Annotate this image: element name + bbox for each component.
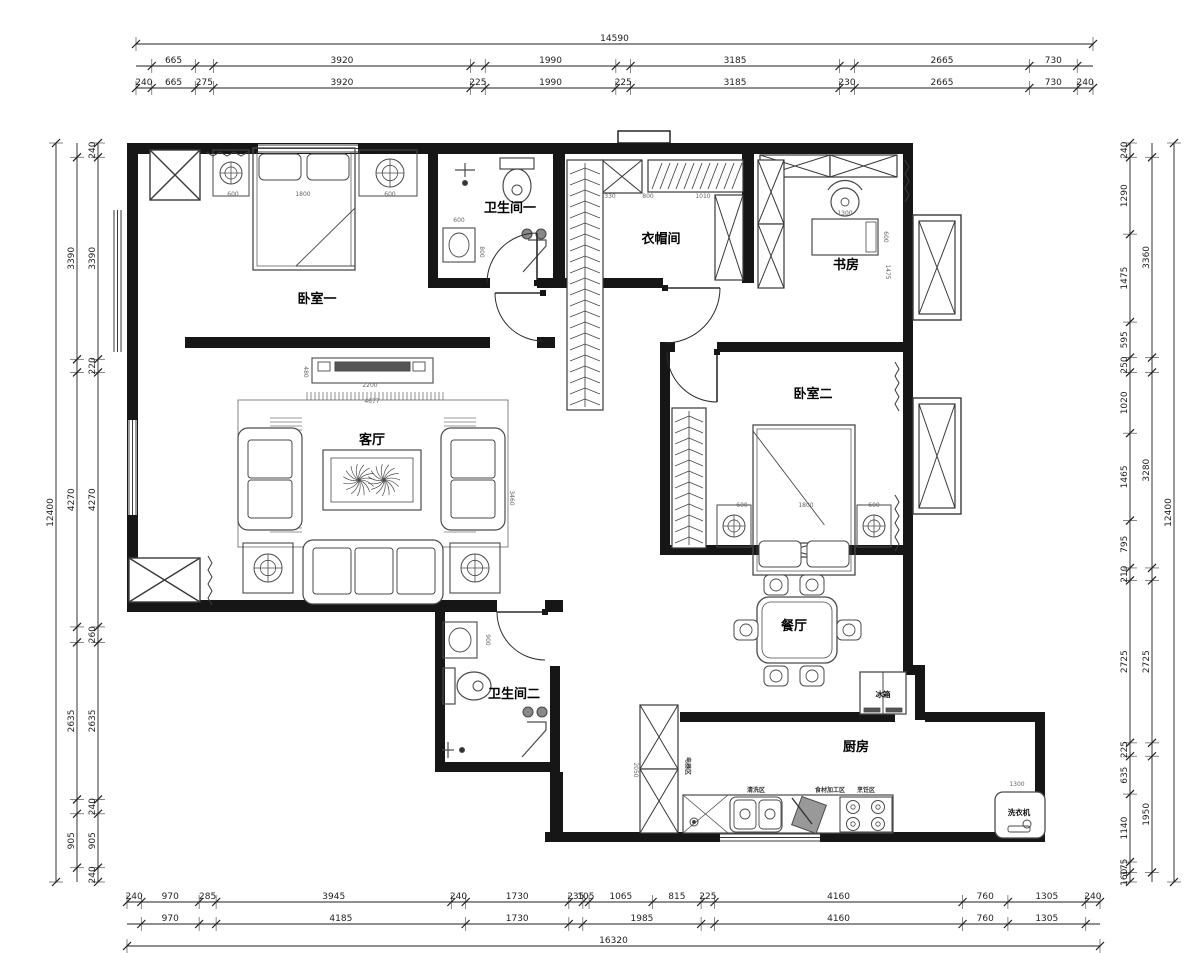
furniture-dim-label: 600 (227, 191, 239, 198)
wall-segment (185, 337, 490, 348)
shower-icon (522, 229, 546, 272)
wardrobe-rack (672, 408, 706, 548)
kitchen-zone-label: 清洗区 (747, 786, 765, 794)
svg-text:1990: 1990 (539, 56, 562, 66)
svg-text:730: 730 (1045, 78, 1062, 88)
wardrobe-rack (567, 160, 603, 410)
wall-segment (537, 337, 555, 348)
svg-text:225: 225 (1120, 741, 1130, 758)
svg-text:12400: 12400 (1164, 498, 1174, 527)
svg-text:635: 635 (1120, 767, 1130, 784)
svg-text:240: 240 (1077, 78, 1094, 88)
svg-text:1990: 1990 (539, 78, 562, 88)
svg-text:3390: 3390 (67, 247, 77, 270)
svg-text:1140: 1140 (1120, 816, 1130, 839)
svg-text:3920: 3920 (331, 56, 354, 66)
dimension-chain: 12400 (46, 139, 63, 886)
wall-segment (428, 143, 438, 288)
furniture-dim-label: 600 (384, 191, 396, 198)
shaft-xbox (150, 150, 200, 200)
svg-text:730: 730 (1045, 56, 1062, 66)
room-label-cloakroom: 衣帽间 (641, 231, 680, 247)
furniture-dim-label: 1300 (1009, 781, 1024, 788)
svg-text:1730: 1730 (506, 914, 529, 924)
svg-text:3185: 3185 (724, 56, 747, 66)
svg-text:3280: 3280 (1142, 458, 1152, 481)
wall-segment (537, 278, 565, 288)
washing-machine-label: 洗衣机 (1008, 807, 1031, 817)
furniture-dim-label: 1800 (798, 502, 813, 509)
toilet-icon (500, 158, 534, 203)
furniture-dim-label: 3460 (508, 490, 515, 505)
bed (253, 148, 355, 270)
svg-text:1290: 1290 (1120, 184, 1130, 207)
svg-text:3185: 3185 (724, 78, 747, 88)
hanger-rod (648, 160, 743, 192)
wavy-window-icon (895, 495, 899, 551)
svg-text:225: 225 (699, 892, 716, 902)
shaft-xbox (640, 705, 678, 769)
window-icon (720, 833, 820, 842)
dimension-chain: 97041851730198541607601305 (127, 914, 1100, 931)
furniture-dim-label: 800 (478, 246, 485, 258)
shaft-xbox (919, 404, 955, 508)
dimension-chain: 339042702635905 (67, 143, 84, 882)
dimension-chain: 2401290147559525010201465795210272522563… (1120, 139, 1137, 886)
wall-segment (903, 143, 913, 358)
svg-text:160: 160 (1120, 868, 1130, 885)
wall-segment (915, 675, 925, 720)
door-arc (667, 349, 720, 402)
wall-segment (435, 278, 490, 288)
svg-text:795: 795 (1120, 536, 1130, 553)
svg-text:1985: 1985 (631, 914, 654, 924)
furniture-dim-label: 600 (736, 502, 748, 509)
svg-text:260: 260 (88, 626, 98, 643)
svg-text:16320: 16320 (599, 936, 628, 946)
wall-segment (435, 600, 497, 612)
furniture-dim-label: 1800 (295, 191, 310, 198)
door-arc (497, 609, 548, 660)
sofa (238, 428, 302, 530)
furniture-dim-label: 2050 (632, 762, 639, 777)
svg-text:14590: 14590 (600, 34, 629, 44)
svg-text:225: 225 (615, 78, 632, 88)
svg-text:240: 240 (88, 798, 98, 815)
furniture-dim-label: 600 (453, 217, 465, 224)
svg-text:210: 210 (1120, 565, 1130, 582)
wall-segment (903, 555, 913, 665)
wall-segment (925, 712, 1045, 722)
svg-text:1475: 1475 (1120, 267, 1130, 290)
svg-text:230: 230 (838, 78, 855, 88)
furniture-dim-label: 600 (868, 502, 880, 509)
room-label-study: 书房 (833, 257, 859, 273)
wall-segment (903, 358, 913, 555)
svg-text:220: 220 (88, 357, 98, 374)
kitchen-zone-label: 食材加工区 (814, 786, 845, 794)
svg-text:4270: 4270 (88, 488, 98, 511)
svg-text:240: 240 (88, 866, 98, 883)
shaft-xbox (758, 160, 784, 224)
stove-icon (840, 797, 892, 832)
sink-icon (443, 228, 475, 262)
dimension-chain: 3360328027251950 (1142, 143, 1159, 882)
wall-segment (553, 143, 565, 278)
svg-text:4160: 4160 (827, 914, 850, 924)
furniture-dim-label: 1475 (884, 264, 891, 279)
svg-text:240: 240 (450, 892, 467, 902)
sofa (441, 428, 505, 530)
room-label-bedroom2: 卧室二 (793, 386, 832, 402)
door-arc (495, 290, 546, 341)
svg-text:285: 285 (199, 892, 216, 902)
svg-text:1065: 1065 (609, 892, 632, 902)
dimension-chain: 16320 (123, 936, 1104, 953)
desk (812, 219, 878, 255)
svg-text:2725: 2725 (1142, 650, 1152, 673)
furniture-dim-label: 1010 (695, 193, 710, 200)
svg-text:240: 240 (88, 141, 98, 158)
toilet-icon (443, 668, 491, 704)
svg-text:12400: 12400 (46, 498, 56, 527)
sofa (303, 540, 443, 604)
furniture-dim-label: 800 (642, 193, 654, 200)
svg-text:2635: 2635 (67, 709, 77, 732)
svg-text:240: 240 (1120, 141, 1130, 158)
shower-icon (522, 707, 547, 757)
wall-segment (127, 143, 913, 154)
nightstand (717, 505, 891, 547)
svg-text:1465: 1465 (1120, 465, 1130, 488)
svg-text:905: 905 (67, 832, 77, 849)
wavy-window-icon (895, 362, 899, 411)
svg-text:240: 240 (1084, 892, 1101, 902)
tv-cabinet (312, 358, 433, 383)
svg-text:1305: 1305 (1035, 914, 1058, 924)
wavy-window-icon (208, 556, 212, 605)
svg-text:250: 250 (1120, 356, 1130, 373)
room-label-bath2: 卫生间二 (488, 686, 540, 702)
svg-text:240: 240 (135, 78, 152, 88)
shaft-xbox (758, 224, 784, 288)
furniture-dim-label: 330 (604, 193, 616, 200)
svg-text:595: 595 (1120, 331, 1130, 348)
kitchen-zone-label: 烹饪区 (857, 786, 875, 794)
svg-text:3920: 3920 (331, 78, 354, 88)
kitchen-zone-label: 电器区 (684, 757, 692, 775)
shaft-xbox (715, 195, 743, 280)
wall-segment (550, 772, 563, 842)
svg-text:1730: 1730 (506, 892, 529, 902)
svg-text:1305: 1305 (1035, 892, 1058, 902)
furniture-dim-label: 2200 (362, 382, 377, 389)
faucet-icon (442, 742, 465, 758)
room-label-bath1: 卫生间一 (484, 200, 536, 216)
wall-segment (660, 342, 675, 352)
svg-text:760: 760 (977, 914, 994, 924)
dimension-chain: 12400 (1164, 139, 1181, 886)
dimension-chain: 2406652753920225199022531852302665730240 (132, 78, 1097, 95)
wall-segment (550, 666, 560, 772)
room-label-kitchen: 厨房 (843, 739, 869, 755)
svg-text:3390: 3390 (88, 247, 98, 270)
sink-icon (443, 622, 477, 658)
shaft-xbox (129, 558, 200, 602)
furniture-dim-label: 1300 (837, 210, 852, 217)
svg-text:905: 905 (88, 832, 98, 849)
coffee-table (323, 450, 421, 510)
svg-text:275: 275 (196, 78, 213, 88)
door-arc (662, 285, 720, 343)
fridge-label: 冰箱 (876, 689, 891, 699)
room-label-dining: 餐厅 (780, 618, 807, 634)
furniture-dim-label: 4677 (364, 398, 379, 405)
svg-text:3360: 3360 (1142, 246, 1152, 269)
svg-text:815: 815 (668, 892, 685, 902)
dimension-chain: 240339022042702602635240905240 (88, 139, 105, 886)
window-bump (618, 131, 670, 143)
window-icon (128, 420, 137, 515)
wall-segment (660, 352, 670, 555)
dimension-chain: 6653920199031852665730 (136, 56, 1093, 73)
kitchen-sink-icon (730, 797, 782, 832)
dimension-chain: 2409702853945240173023510510658152254160… (123, 892, 1104, 909)
svg-text:970: 970 (162, 914, 179, 924)
svg-text:970: 970 (162, 892, 179, 902)
shaft-xbox (640, 769, 678, 833)
floor-plan-svg: 2406652753920225199022531852302665730240… (0, 0, 1200, 953)
door-arc (487, 233, 540, 286)
window-icon (113, 210, 122, 352)
floorplan-canvas: 2406652753920225199022531852302665730240… (0, 0, 1200, 953)
svg-text:1950: 1950 (1142, 803, 1152, 826)
svg-text:4160: 4160 (827, 892, 850, 902)
furniture-dim-label: 600 (882, 231, 889, 243)
svg-text:4185: 4185 (329, 914, 352, 924)
shaft-xbox (919, 221, 955, 314)
svg-text:105: 105 (577, 892, 594, 902)
wall-segment (435, 762, 560, 772)
svg-text:760: 760 (977, 892, 994, 902)
room-label-living: 客厅 (359, 432, 385, 448)
wall-segment (127, 143, 138, 605)
svg-text:665: 665 (165, 56, 182, 66)
svg-text:1020: 1020 (1120, 391, 1130, 414)
svg-text:3945: 3945 (322, 892, 345, 902)
room-label-bedroom1: 卧室一 (297, 291, 336, 307)
furniture-dim-label: 900 (484, 634, 491, 646)
svg-text:2635: 2635 (88, 709, 98, 732)
svg-text:225: 225 (469, 78, 486, 88)
svg-text:240: 240 (126, 892, 143, 902)
wall-segment (717, 342, 913, 352)
shaft-xbox (602, 160, 642, 193)
svg-text:2665: 2665 (931, 56, 954, 66)
dimension-chain: 14590 (132, 34, 1097, 51)
furniture-dim-label: 480 (302, 366, 309, 378)
shaft-xbox (830, 155, 897, 177)
faucet-icon (455, 163, 475, 186)
wall-segment (742, 143, 754, 283)
svg-text:4270: 4270 (67, 488, 77, 511)
svg-text:665: 665 (165, 78, 182, 88)
svg-text:2665: 2665 (931, 78, 954, 88)
svg-text:2725: 2725 (1120, 650, 1130, 673)
